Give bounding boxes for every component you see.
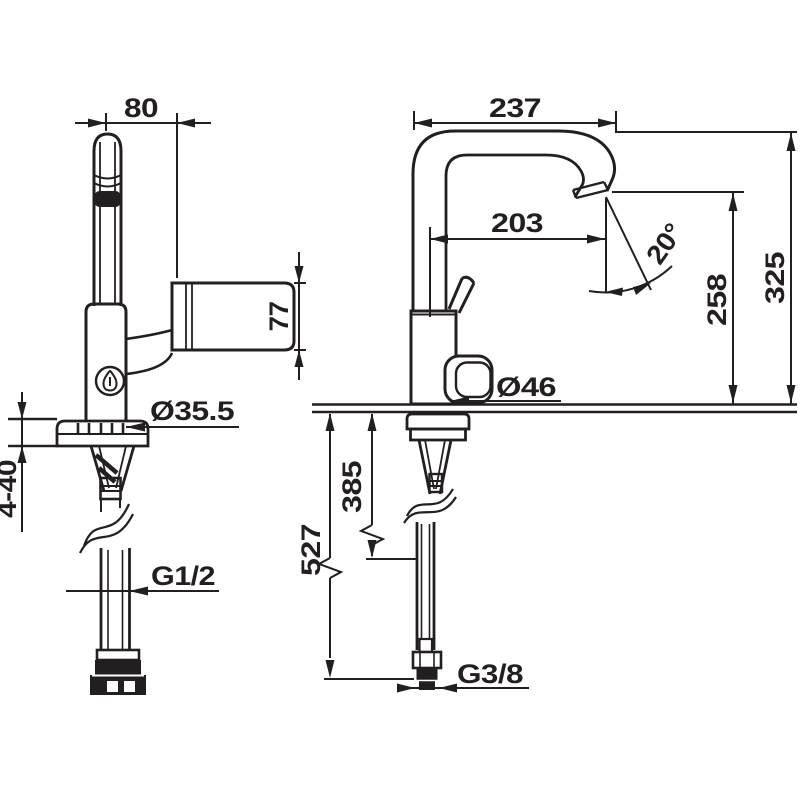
dimension-hole-diameter: Ø35.5 xyxy=(126,396,239,432)
dim-325-label: 325 xyxy=(760,251,790,304)
spray-head-arc-1 xyxy=(94,175,121,179)
faucet-technical-drawing: 80 77 4-40 Ø35.5 G1/2 237 203 xyxy=(0,0,800,800)
dia-46-label: Ø46 xyxy=(496,372,557,402)
dimension-hose-overall-length: 527 xyxy=(296,413,414,679)
dim-203-label: 203 xyxy=(491,208,544,238)
connector-right-top xyxy=(413,652,441,668)
side-washer xyxy=(407,414,469,429)
dimension-handle-height: 77 xyxy=(264,252,306,380)
hose-end-sleeve xyxy=(420,639,433,652)
dim-527-label: 527 xyxy=(296,524,326,576)
connector-block-1 xyxy=(95,660,141,675)
connector-step-left xyxy=(97,650,139,660)
hose-right-outer xyxy=(417,522,434,650)
handle-neck-lower xyxy=(126,353,172,374)
hose-left-outer xyxy=(101,548,130,650)
connector-right-mid xyxy=(417,668,438,680)
dimension-spray-angle: 20° xyxy=(589,197,689,296)
dia-35-5-label: Ø35.5 xyxy=(150,396,235,426)
dimension-hose-visible-length: 385 xyxy=(337,413,417,559)
dimension-total-height: 325 xyxy=(615,132,797,404)
hose-break-right xyxy=(404,489,456,523)
dimension-spout-reach: 237 xyxy=(414,93,616,131)
thread-g38-label: G3/8 xyxy=(457,659,524,689)
handle-lever-side xyxy=(449,277,474,313)
dim-77-label: 77 xyxy=(264,302,294,332)
spray-tube-outline xyxy=(94,134,121,306)
flange-ticks xyxy=(78,423,123,433)
dim-237-label: 237 xyxy=(489,93,541,123)
connector-notch-1 xyxy=(107,681,118,692)
dimension-mounting-thickness: 4-40 xyxy=(0,392,27,532)
body-outline xyxy=(86,304,126,421)
spray-head-arc-2 xyxy=(94,183,121,187)
thread-g12-label: G1/2 xyxy=(151,561,215,591)
hose-right-inner xyxy=(422,524,430,640)
side-crimp-bars xyxy=(430,481,443,486)
dim-258-label: 258 xyxy=(702,273,732,326)
hose-break-stubs xyxy=(101,499,120,512)
angle-20-label: 20° xyxy=(640,218,689,270)
drawing-canvas: 80 77 4-40 Ø35.5 G1/2 237 203 xyxy=(0,0,800,800)
label-inlet-thread: G1/2 xyxy=(66,561,219,596)
dimension-outlet-height: 258 xyxy=(612,192,744,404)
dimension-spout-projection: 203 xyxy=(430,208,605,317)
handle-neck-upper xyxy=(126,330,172,339)
spray-head-band xyxy=(95,191,121,207)
dim-4-40-label: 4-40 xyxy=(0,460,22,518)
hose-break-left xyxy=(80,504,133,553)
dim-385-label: 385 xyxy=(337,460,367,513)
hose-left-inner xyxy=(108,550,123,650)
connector-notch-2 xyxy=(124,681,135,692)
side-nut xyxy=(411,429,466,440)
dim-80-label: 80 xyxy=(124,93,158,123)
side-view xyxy=(312,131,797,690)
